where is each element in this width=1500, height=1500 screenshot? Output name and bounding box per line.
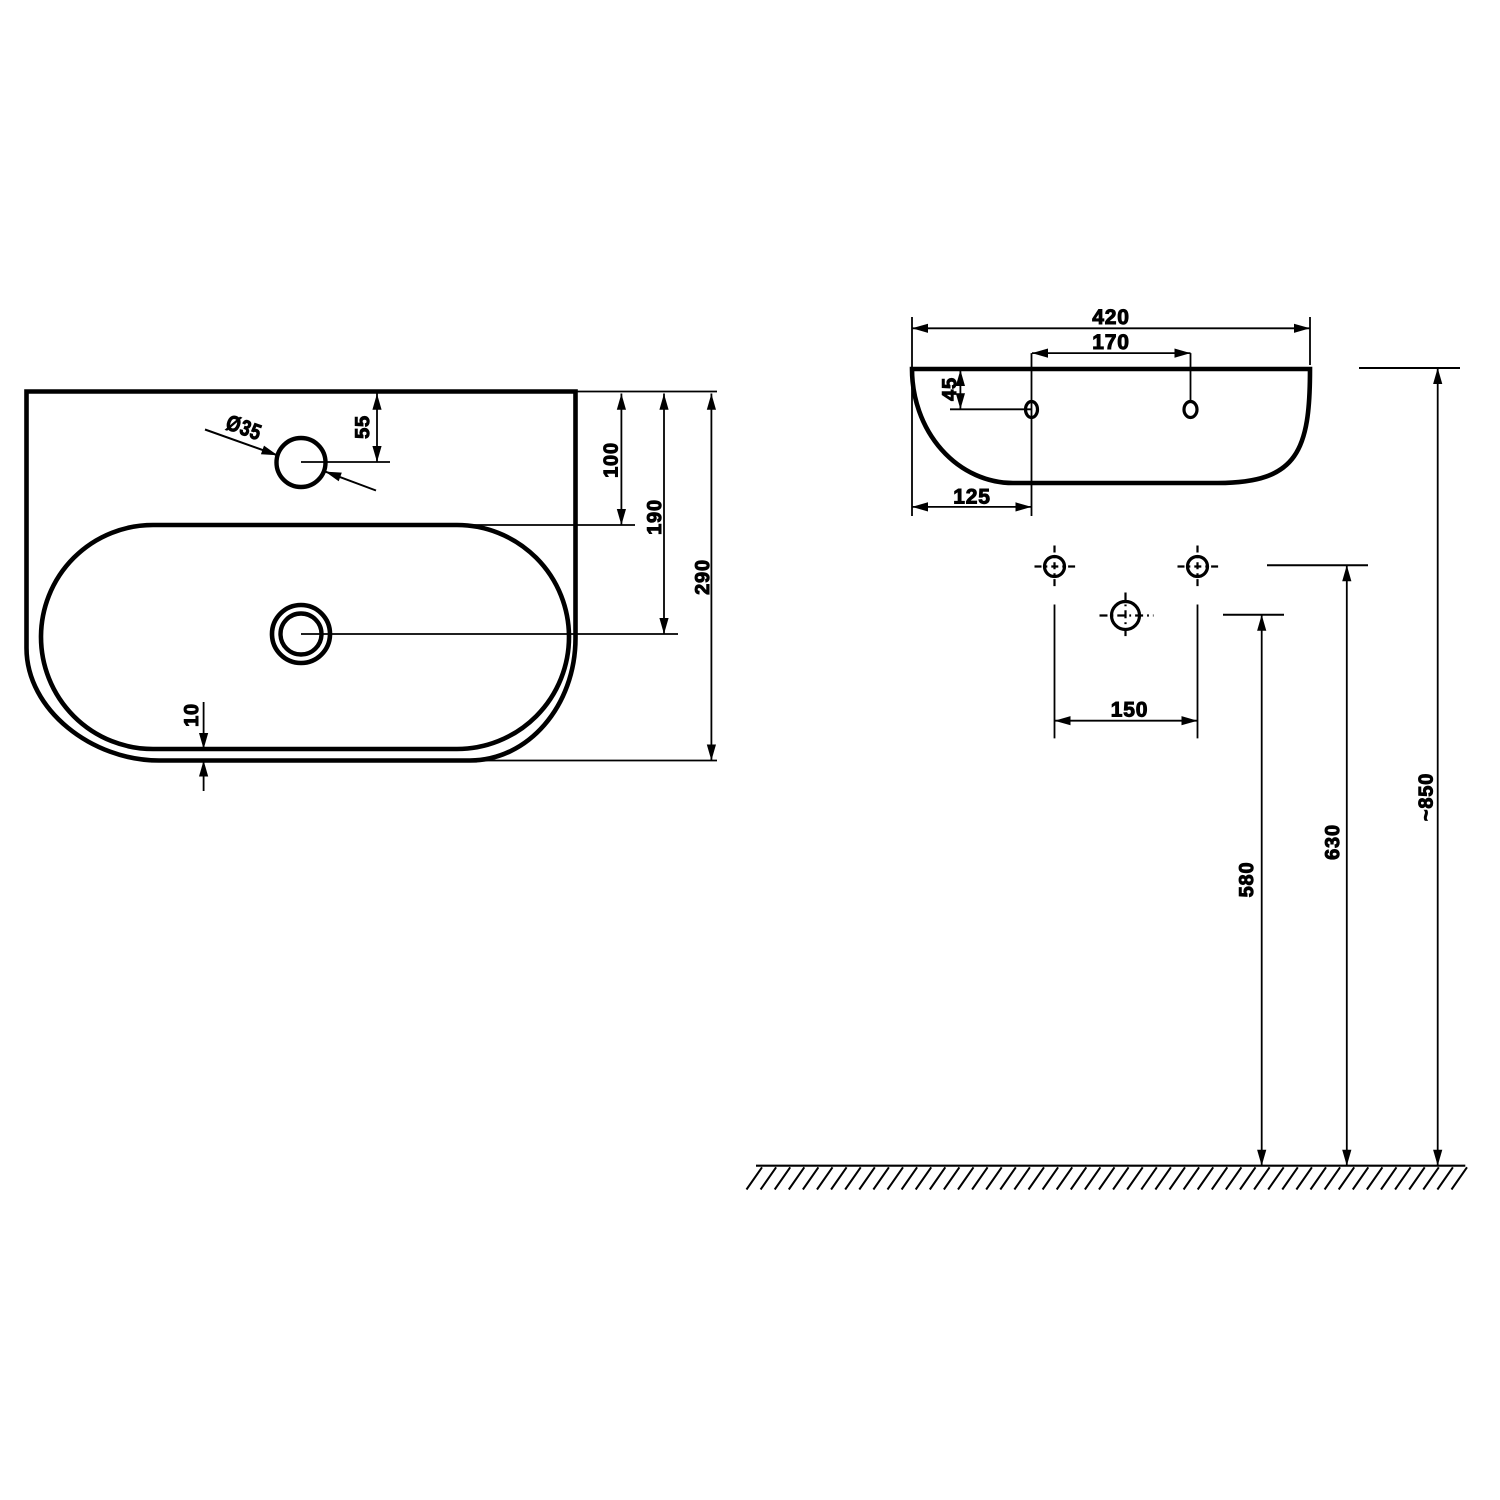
svg-text:580: 580 xyxy=(1236,862,1258,898)
svg-text:10: 10 xyxy=(181,703,203,727)
svg-text:100: 100 xyxy=(601,442,623,478)
svg-text:150: 150 xyxy=(1111,699,1148,722)
svg-text:~850: ~850 xyxy=(1416,773,1438,821)
svg-text:420: 420 xyxy=(1092,306,1129,329)
svg-text:290: 290 xyxy=(692,559,714,595)
svg-text:125: 125 xyxy=(953,486,990,509)
svg-text:45: 45 xyxy=(939,377,961,401)
svg-text:630: 630 xyxy=(1322,824,1344,860)
svg-text:190: 190 xyxy=(644,499,666,535)
svg-text:55: 55 xyxy=(352,415,374,439)
svg-text:170: 170 xyxy=(1092,331,1129,354)
